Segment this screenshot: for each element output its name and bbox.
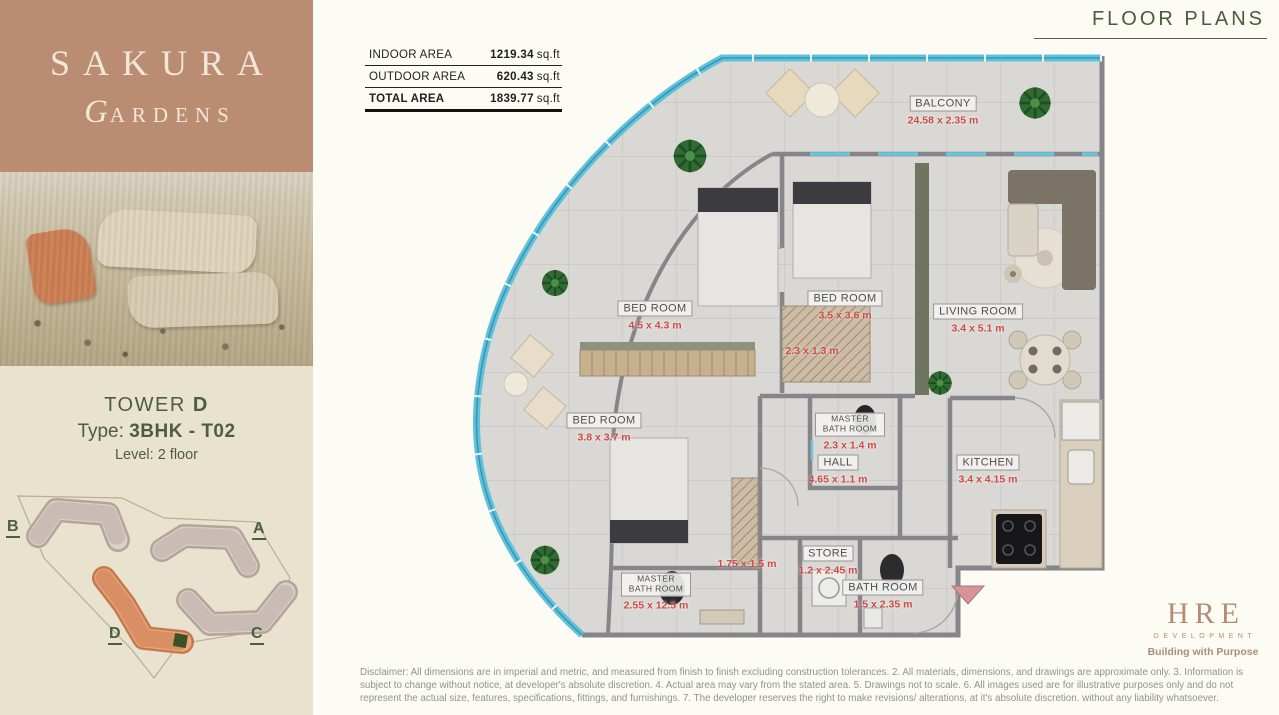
tower-a-shape: [162, 536, 248, 566]
area-table: INDOOR AREA 1219.34sq.ft OUTDOOR AREA 62…: [365, 44, 562, 112]
room-name: KITCHEN: [956, 455, 1019, 471]
tower-value: D: [193, 394, 209, 416]
developer-name: HRE: [1141, 597, 1271, 631]
room-name: MASTER BATH ROOM: [815, 413, 885, 437]
level-label: Level:: [115, 447, 154, 463]
developer-logo: HRE DEVELOPMENT Building with Purpose: [1135, 597, 1271, 658]
tv-partition-wall: [915, 163, 929, 395]
room-dims: 3.5 x 3.6 m: [807, 310, 882, 322]
row-number: 1839.77: [490, 93, 534, 105]
table-row-total: TOTAL AREA 1839.77sq.ft: [365, 88, 562, 112]
floor-plan-page: SAKURA GARDENS TOWER D Type: 3BHK - T02 …: [0, 0, 1279, 715]
page-title: FLOOR PLANS: [1034, 8, 1267, 39]
row-number: 1219.34: [490, 49, 534, 61]
unit-location-marker: [173, 633, 188, 648]
room-name: BALCONY: [909, 96, 976, 112]
room-dims: 3.4 x 4.15 m: [956, 474, 1019, 486]
level-value: 2 floor: [158, 447, 198, 463]
row-label: OUTDOOR AREA: [369, 71, 465, 83]
floor-plan: BALCONY 24.58 x 2.35 m BED ROOM 4.5 x 4.…: [460, 48, 1110, 644]
row-value: 620.43sq.ft: [497, 71, 560, 83]
closet-dims: 2.3 x 1.3 m: [785, 345, 838, 357]
room-label-hall: HALL 4.65 x 1.1 m: [809, 453, 868, 486]
room-label-store: STORE 1.2 x 2.45 m: [799, 544, 858, 577]
room-name: MASTER BATH ROOM: [621, 573, 691, 597]
site-label-d: D: [108, 626, 122, 645]
room-label-master-bath-1: MASTER BATH ROOM 2.3 x 1.4 m: [815, 413, 885, 452]
type-line: Type: 3BHK - T02: [0, 421, 313, 443]
disclaimer-text: Disclaimer: All dimensions are in imperi…: [360, 667, 1276, 706]
room-label-kitchen: KITCHEN 3.4 x 4.15 m: [956, 453, 1019, 486]
room-dims: 1.5 x 2.35 m: [842, 599, 923, 611]
room-dims: 4.65 x 1.1 m: [809, 474, 868, 486]
room-label-living-room: LIVING ROOM 3.4 x 5.1 m: [933, 302, 1023, 335]
long-wardrobe: [580, 342, 755, 376]
room-name: BED ROOM: [617, 301, 692, 317]
site-plan-drawing: [4, 478, 310, 704]
living-room-furniture: [1004, 170, 1096, 290]
row-unit: sq.ft: [537, 93, 560, 105]
unit-info: TOWER D Type: 3BHK - T02 Level: 2 floor: [0, 394, 313, 463]
room-dims: 3.4 x 5.1 m: [933, 323, 1023, 335]
room-name: STORE: [802, 546, 854, 562]
room-label-master-bath-2: MASTER BATH ROOM 2.55 x 12.5 m: [621, 573, 691, 612]
room-label-bathroom: BATH ROOM 1.5 x 2.35 m: [842, 578, 923, 611]
building-shape: [127, 271, 279, 328]
level-line: Level: 2 floor: [0, 447, 313, 463]
site-label-b: B: [6, 519, 20, 538]
room-name: HALL: [817, 455, 858, 471]
room-name: BED ROOM: [807, 291, 882, 307]
site-label-a: A: [252, 521, 266, 540]
tower-label: TOWER: [104, 394, 186, 416]
type-value: 3BHK - T02: [129, 421, 235, 442]
highlighted-building-shape: [25, 226, 97, 307]
room-label-bedroom-1: BED ROOM 4.5 x 4.3 m: [617, 299, 692, 332]
brand-subtitle: GARDENS: [84, 94, 236, 131]
developer-tagline: Building with Purpose: [1135, 646, 1271, 658]
left-panel: SAKURA GARDENS TOWER D Type: 3BHK - T02 …: [0, 0, 313, 715]
type-label: Type:: [77, 421, 123, 442]
row-number: 620.43: [497, 71, 534, 83]
brand-name: SAKURA: [50, 42, 276, 84]
room-dims: 24.58 x 2.35 m: [908, 115, 979, 127]
room-name: BED ROOM: [566, 413, 641, 429]
row-label: TOTAL AREA: [369, 93, 444, 105]
development-aerial-photo: [0, 172, 313, 366]
row-value: 1219.34sq.ft: [490, 49, 560, 61]
room-dims: 2.55 x 12.5 m: [621, 599, 691, 611]
building-shape: [97, 208, 258, 274]
row-unit: sq.ft: [537, 49, 560, 61]
room-dims: 3.8 x 3.7 m: [566, 432, 641, 444]
brand-block: SAKURA GARDENS: [0, 0, 313, 172]
room-label-balcony: BALCONY 24.58 x 2.35 m: [908, 94, 979, 127]
room-name: BATH ROOM: [842, 580, 923, 596]
row-label: INDOOR AREA: [369, 49, 452, 61]
table-row-outdoor: OUTDOOR AREA 620.43sq.ft: [365, 66, 562, 88]
tower-b-shape: [38, 510, 118, 540]
room-name: LIVING ROOM: [933, 304, 1023, 320]
wardrobe: [732, 478, 758, 564]
table-row-indoor: INDOOR AREA 1219.34sq.ft: [365, 44, 562, 66]
site-plan: B A D C: [4, 478, 310, 704]
developer-division: DEVELOPMENT: [1139, 633, 1271, 640]
room-dims: 2.3 x 1.4 m: [815, 439, 885, 451]
tower-c-shape: [188, 592, 286, 624]
tower-line: TOWER D: [0, 394, 313, 417]
corridor-dims: 1.75 x 1.5 m: [718, 558, 777, 570]
row-value: 1839.77sq.ft: [490, 93, 560, 105]
room-dims: 4.5 x 4.3 m: [617, 320, 692, 332]
row-unit: sq.ft: [537, 71, 560, 83]
dining-set: [1009, 331, 1081, 389]
room-label-bedroom-2: BED ROOM 3.5 x 3.6 m: [807, 289, 882, 322]
room-dims: 1.2 x 2.45 m: [799, 565, 858, 577]
room-label-bedroom-3: BED ROOM 3.8 x 3.7 m: [566, 411, 641, 444]
site-label-c: C: [250, 626, 264, 645]
